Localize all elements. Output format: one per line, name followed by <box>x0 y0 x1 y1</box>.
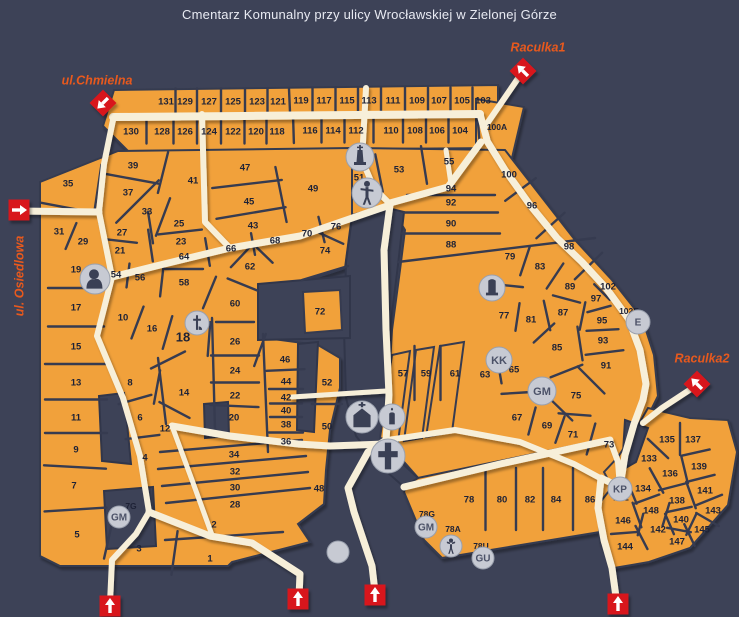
section-label: 66 <box>226 243 237 254</box>
section-label: 76 <box>331 221 342 232</box>
section-label: 42 <box>281 392 292 403</box>
section-label: 43 <box>248 220 259 231</box>
section-label: 104 <box>452 125 469 136</box>
section-label: 24 <box>230 365 241 376</box>
marker-kk: KK <box>486 347 512 373</box>
section-label: 32 <box>230 466 241 477</box>
section-label: 114 <box>325 125 341 136</box>
section-label: 13 <box>71 377 82 388</box>
section-label: 23 <box>176 236 187 247</box>
section-label: 33 <box>142 206 153 217</box>
section-label: 59 <box>421 368 432 379</box>
section-label: 85 <box>552 342 563 353</box>
marker-e: E <box>626 310 650 334</box>
section-label: 78A <box>445 524 461 534</box>
section-label: 112 <box>348 125 363 136</box>
section-label: 11 <box>71 412 82 423</box>
section-label: 38 <box>281 419 292 430</box>
section-label: 28 <box>230 499 241 510</box>
statue-icon <box>352 178 382 208</box>
section-label: 97 <box>591 293 602 304</box>
entrance-arrow-icon <box>100 596 121 617</box>
section-label: 64 <box>179 251 190 262</box>
section-label: 71 <box>568 429 579 440</box>
street-label: ul. Osiedlowa <box>12 236 26 317</box>
section-label: 138 <box>669 495 685 506</box>
section-label: 113 <box>361 95 376 106</box>
section-label: 48 <box>314 483 325 494</box>
section-label: 87 <box>558 307 569 318</box>
section-label: 129 <box>177 96 193 107</box>
section-label: 105 <box>454 95 471 106</box>
section-label: 5 <box>74 529 80 540</box>
section-label: 29 <box>78 236 89 247</box>
bust-icon <box>80 264 110 294</box>
marker-gu: GU <box>472 547 494 569</box>
section-label: 37 <box>123 187 134 198</box>
section-label: 50 <box>322 421 333 432</box>
section-label: 82 <box>525 494 536 505</box>
section-label: 77 <box>499 310 510 321</box>
section-label: 69 <box>542 420 553 431</box>
marker-letters: E <box>635 318 642 329</box>
marker-circle <box>327 541 349 563</box>
section-label: 98 <box>564 241 575 252</box>
section-label: 145 <box>694 524 711 535</box>
section-label: 124 <box>201 126 218 137</box>
marker-letters: GM <box>111 513 127 524</box>
monument-icon <box>346 143 374 171</box>
section-label: 53 <box>394 164 405 175</box>
section-label: 1 <box>207 553 213 564</box>
section-border <box>293 118 294 143</box>
marker-gm: GM <box>108 506 130 528</box>
section-label: 126 <box>177 126 193 137</box>
section-label: 25 <box>174 218 185 229</box>
section-label: 102 <box>600 281 616 292</box>
section-label: 119 <box>293 95 308 106</box>
section-label: 96 <box>527 200 538 211</box>
section-label: 19 <box>71 264 82 275</box>
entrance-arrow-icon <box>9 200 30 221</box>
section-label: 127 <box>201 96 217 107</box>
section-label: 111 <box>386 95 402 106</box>
section-label: 22 <box>230 390 241 401</box>
marker-letters: KK <box>491 355 507 367</box>
section-label: 30 <box>230 482 241 493</box>
section-label: 17 <box>71 302 82 313</box>
street-label: ul.Chmielna <box>62 73 133 87</box>
section-label: 147 <box>669 536 685 547</box>
section-label: 46 <box>280 354 291 365</box>
section-label: 34 <box>229 449 240 460</box>
section-label: 12 <box>160 423 171 434</box>
chapel-icon <box>346 401 378 433</box>
section-label: 128 <box>154 126 170 137</box>
section-label: 16 <box>147 323 158 334</box>
section-label: 9 <box>73 444 78 455</box>
section-label: 80 <box>497 494 508 505</box>
section-label: 47 <box>240 162 251 173</box>
section-label: 95 <box>597 315 608 326</box>
section-label: 15 <box>71 341 82 352</box>
section-label: 40 <box>281 405 292 416</box>
section-label: 56 <box>135 272 146 283</box>
section-label: 118 <box>269 126 284 137</box>
section-label: 84 <box>551 494 562 505</box>
entrance-arrow-icon <box>608 594 629 615</box>
alley-path <box>113 114 480 117</box>
section-label: 70 <box>302 228 313 239</box>
section-label: 133 <box>641 453 657 464</box>
section-label: 120 <box>248 126 264 137</box>
section-label: 135 <box>659 434 676 445</box>
cemetery-map: 1311291271251231211191171151131111091071… <box>0 0 739 617</box>
street-label: Raculka1 <box>511 40 566 54</box>
section-label: 106 <box>429 125 445 136</box>
section-label: 94 <box>446 183 457 194</box>
section-label: 31 <box>54 226 65 237</box>
section-label: 75 <box>571 390 582 401</box>
section-label: 45 <box>244 196 255 207</box>
section-label: 39 <box>128 160 139 171</box>
section-label: 110 <box>383 125 398 136</box>
section-border <box>289 88 290 113</box>
section-label: 49 <box>308 183 319 194</box>
section-label: 20 <box>229 412 240 423</box>
section-label: 27 <box>117 227 128 238</box>
section-label: 26 <box>230 336 241 347</box>
section-label: 14 <box>179 387 190 398</box>
section-label: 81 <box>526 314 537 325</box>
section-label: 10 <box>118 312 129 323</box>
section-label: 52 <box>322 377 333 388</box>
section-label: 107 <box>431 95 447 106</box>
section-label: 2 <box>211 519 216 530</box>
section-label: 88 <box>446 239 457 250</box>
pieta-icon <box>185 311 209 335</box>
section-label: 18 <box>176 330 190 345</box>
section-label: 103 <box>475 95 491 106</box>
marker-letters: GM <box>418 523 434 534</box>
section-label: 142 <box>650 524 666 535</box>
section-label: 55 <box>444 156 455 167</box>
marker-letters: GM <box>533 386 551 398</box>
section-label: 100 <box>501 169 517 180</box>
section-label: 148 <box>643 505 659 516</box>
section-label: 93 <box>598 335 609 346</box>
section-label: 54 <box>111 269 122 280</box>
marker-kp: KP <box>608 477 632 501</box>
section-label: 90 <box>446 218 457 229</box>
section-label: 61 <box>450 368 461 379</box>
section-label: 134 <box>635 483 652 494</box>
section-label: 144 <box>617 541 634 552</box>
section-label: 117 <box>316 95 331 106</box>
section-label: 130 <box>123 126 139 137</box>
street-label: Raculka2 <box>675 351 730 365</box>
section-label: 8 <box>127 377 132 388</box>
section-label: 60 <box>230 298 241 309</box>
entrance-arrow-icon <box>288 589 309 610</box>
section-label: 115 <box>339 95 355 106</box>
candle-icon <box>379 404 405 430</box>
section-label: 91 <box>601 360 612 371</box>
section-label: 136 <box>662 468 678 479</box>
section-label: 41 <box>188 175 199 186</box>
section-label: 7 <box>71 480 76 491</box>
section-border <box>587 329 619 331</box>
section-label: 72 <box>315 306 326 317</box>
section-label: 89 <box>565 281 576 292</box>
dark-pocket <box>297 342 318 432</box>
marker-gm: GM <box>528 377 556 405</box>
cemetery-map-page: Cmentarz Komunalny przy ulicy Wrocławski… <box>0 0 739 617</box>
section-label: 140 <box>673 514 689 525</box>
section-label: 121 <box>270 96 287 107</box>
alley-path <box>19 211 99 212</box>
section-label: 122 <box>225 126 241 137</box>
section-label: 116 <box>302 125 317 136</box>
section-label: 109 <box>409 95 425 106</box>
section-label: 74 <box>320 245 331 256</box>
section-label: 67 <box>512 412 523 423</box>
section-label: 21 <box>115 245 126 256</box>
section-label: 3 <box>136 543 141 554</box>
section-label: 6 <box>137 412 142 423</box>
plain-icon <box>327 541 349 563</box>
section-label: 86 <box>585 494 596 505</box>
section-label: 78 <box>464 494 475 505</box>
section-label: 139 <box>691 461 707 472</box>
section-label: 137 <box>685 434 701 445</box>
entrance-arrow-icon <box>365 585 386 606</box>
section-label: 100A <box>487 122 507 132</box>
cross-icon <box>371 439 405 473</box>
section-label: 58 <box>179 277 190 288</box>
section-label: 108 <box>407 125 423 136</box>
section-label: 92 <box>446 197 457 208</box>
section-label: 146 <box>615 515 631 526</box>
section-label: 143 <box>705 505 721 516</box>
section-label: 83 <box>535 261 546 272</box>
marker-gm: GM <box>415 516 437 538</box>
section-label: 63 <box>480 369 491 380</box>
section-label: 79 <box>505 251 516 262</box>
figure-icon <box>440 535 462 557</box>
marker-letters: GU <box>476 554 491 565</box>
section-label: 125 <box>225 96 242 107</box>
section-label: 4 <box>142 452 148 463</box>
section-label: 141 <box>697 485 714 496</box>
monument2-icon <box>479 275 505 301</box>
section-label: 36 <box>281 436 292 447</box>
section-label: 73 <box>604 439 615 450</box>
section-label: 35 <box>63 178 74 189</box>
section-label: 62 <box>245 261 256 272</box>
section-label: 57 <box>398 368 409 379</box>
marker-letters: KP <box>613 485 627 496</box>
section-label: 44 <box>281 376 292 387</box>
section-label: 131 <box>158 96 175 107</box>
section-label: 123 <box>249 96 265 107</box>
section-label: 68 <box>270 235 281 246</box>
